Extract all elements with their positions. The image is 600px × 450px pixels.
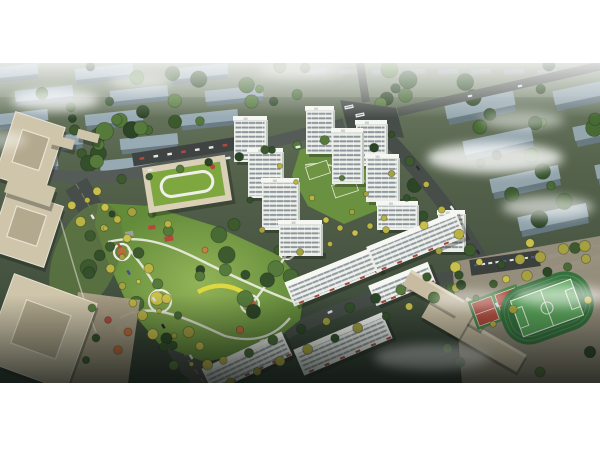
tree [522,270,533,281]
tree [94,250,105,261]
shop-awning [217,385,222,389]
tree [579,241,590,252]
tree [259,227,265,233]
tree [117,174,127,184]
tree [123,234,131,242]
cloud [427,143,563,173]
tree [489,280,497,288]
tree [90,154,104,168]
tree [219,264,231,276]
tree [320,136,329,145]
tree [476,259,483,266]
tree [464,244,476,256]
tree [211,227,227,243]
tree [83,267,95,279]
tree [337,225,343,231]
tree [547,181,556,190]
tree [128,208,137,217]
residential-tower [365,154,403,205]
tree [241,270,250,279]
tree [563,263,571,271]
tree [420,221,428,229]
tree [581,254,590,263]
tree [396,285,406,295]
top-haze [0,63,600,118]
tree [455,271,464,280]
tree [297,249,304,256]
tree [423,273,432,282]
tree [383,227,390,234]
tree [119,282,126,289]
tree [543,267,552,276]
tree [367,223,373,229]
tree [381,215,387,221]
tree [103,226,108,231]
tree [85,230,96,241]
tree [84,197,90,203]
tree [418,211,428,221]
tree [370,143,379,152]
tree [68,201,76,209]
rendering-content [0,59,600,396]
tree [93,187,101,195]
tree [438,206,445,213]
tree [423,181,429,187]
tree [218,247,235,264]
tree [456,280,466,290]
tree [153,279,163,289]
bottom-vignette [0,295,600,383]
tree [106,264,115,273]
tree [144,264,154,274]
tree [105,242,114,251]
tree [323,217,329,223]
scene-canvas [0,0,600,450]
tree [114,216,121,223]
tree [526,239,535,248]
tree [363,191,368,196]
tree [134,121,148,135]
tree [228,218,240,230]
tree [195,271,205,281]
tree [405,157,415,167]
tree [497,261,505,269]
tree [502,276,509,283]
tree [75,216,85,226]
tree [388,131,394,137]
tree [339,175,344,180]
tree [436,248,443,255]
tree [260,273,275,288]
tree [535,252,546,263]
tree [569,242,580,253]
tree [352,230,358,236]
tree [176,165,184,173]
tree [327,241,332,246]
tree [247,197,253,203]
tree [146,173,153,180]
tree [454,229,464,239]
tree [558,244,569,255]
aerial-rendering-image [0,0,600,450]
tree [403,195,410,202]
tree [388,170,394,176]
tree [205,158,213,166]
tree [294,180,299,185]
tree [235,152,244,161]
tree [277,163,282,168]
tree [515,254,525,264]
tree [349,209,354,214]
cloud [502,196,594,218]
tree [309,195,315,201]
tree [164,220,171,227]
tree [109,211,115,217]
residential-tower [331,128,367,187]
tree [202,247,208,253]
tree [136,279,140,283]
tree [101,204,109,212]
tree [119,254,125,260]
tree [261,145,270,154]
tree [133,248,144,259]
